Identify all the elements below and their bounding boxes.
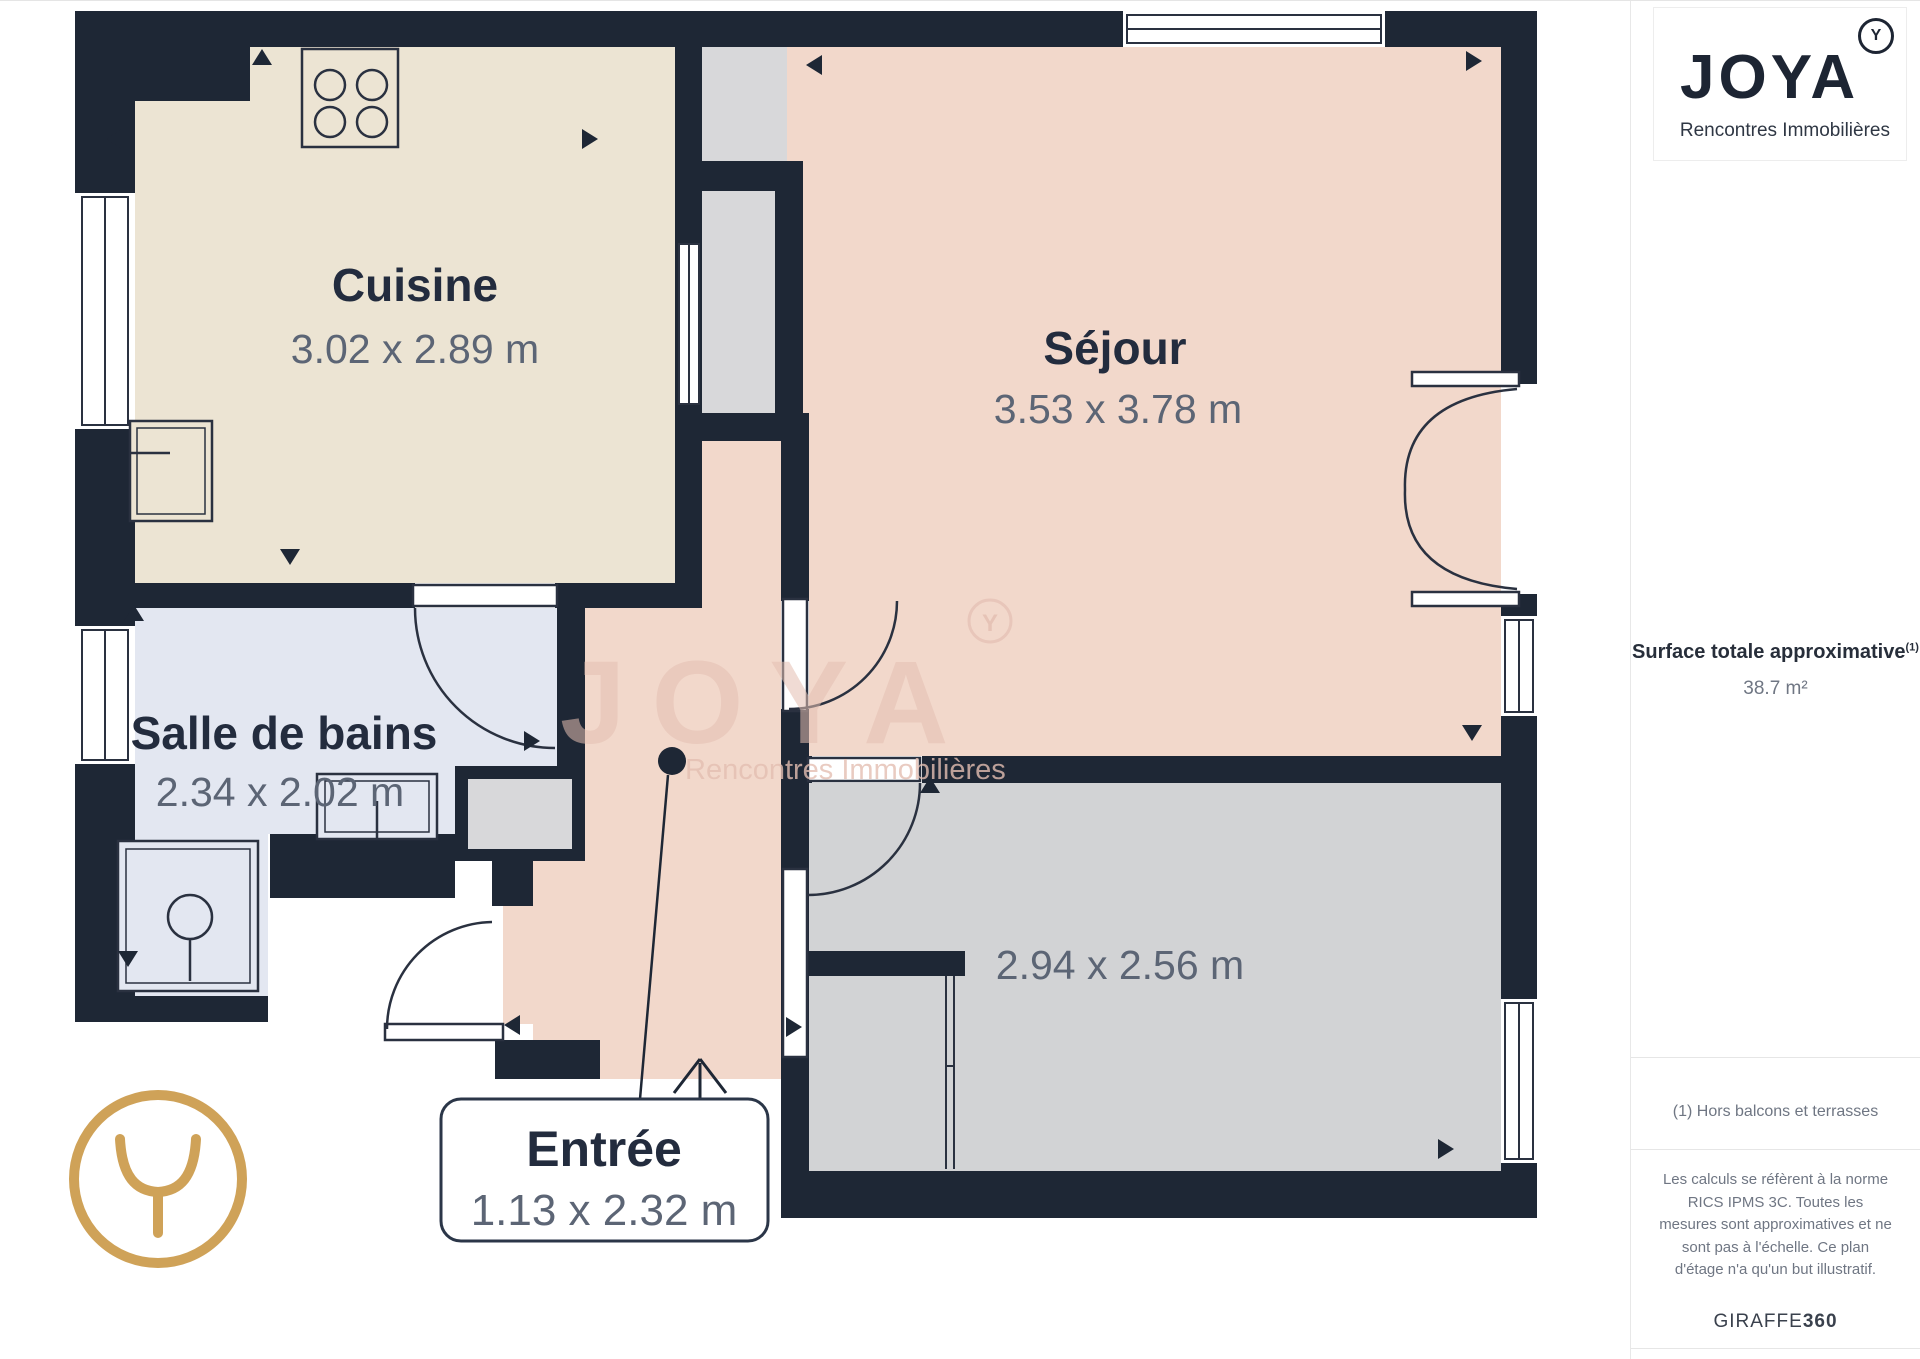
agency-logo-wordmark: JOYA [1680, 42, 1859, 113]
appliance-icon [130, 421, 212, 521]
shaft-lower [702, 191, 775, 413]
chambre-window-icon [1505, 1003, 1533, 1159]
opening-french-door [1501, 384, 1537, 594]
callout-dot [658, 747, 686, 775]
surface-total-value: 38.7 m² [1631, 678, 1920, 700]
shower-icon [118, 841, 258, 991]
surface-total-block: Surface totale approximative(1) 38.7 m² [1631, 641, 1920, 700]
wall-under-sink [270, 834, 455, 898]
wall-entree-right [781, 441, 809, 1218]
wall-header-topleft [135, 47, 250, 101]
legal-disclaimer: Les calculs se réfèrent à la norme RICS … [1631, 1169, 1920, 1282]
wall-chambre-bottom [781, 1171, 1537, 1218]
agency-logo-tagline: Rencontres Immobilières [1680, 120, 1890, 142]
wall-nook-left [75, 834, 110, 1017]
sejour-dimensions: 3.53 x 3.78 m [994, 386, 1242, 432]
wall-closet-stub [809, 951, 965, 976]
giraffe-brand-name: GIRAFFE [1713, 1311, 1802, 1332]
info-sidebar: JOYA Y Rencontres Immobilières Surface t… [1630, 1, 1920, 1359]
bains-window-icon [82, 630, 128, 760]
wall-frontdoor-stub-upper [492, 861, 533, 906]
wall-shaft-bottom [675, 413, 809, 441]
wall-frontdoor-stub-lower [495, 1040, 600, 1079]
entree-dimensions: 1.13 x 2.32 m [471, 1186, 738, 1235]
watermark-monogram: Y [982, 610, 998, 637]
giraffe360-brand: GIRAFFE360 [1631, 1311, 1920, 1333]
chambre-dimensions: 2.94 x 2.56 m [996, 942, 1244, 988]
entree-label: Entrée [526, 1121, 682, 1177]
floorplan-page: JOYA Rencontres Immobilières Y Cuisine 3… [0, 0, 1920, 1359]
giraffe-brand-suffix: 360 [1803, 1311, 1838, 1332]
surface-footnote-marker: (1) [1905, 641, 1918, 653]
cuisine-label: Cuisine [332, 259, 498, 311]
divider [1631, 1149, 1920, 1150]
stove-icon [302, 49, 398, 147]
cuisine-dimensions: 3.02 x 2.89 m [291, 326, 539, 372]
divider [1631, 1057, 1920, 1058]
cuisine-glazing-icon [679, 244, 699, 404]
footnote-text: (1) Hors balcons et terrasses [1631, 1103, 1920, 1121]
sejour-window-icon [1505, 620, 1533, 712]
cuisine-window-icon [82, 197, 128, 425]
sejour-label: Séjour [1043, 322, 1186, 374]
agency-monogram-icon: Y [1858, 18, 1894, 54]
salle-de-bains-dimensions: 2.34 x 2.02 m [156, 769, 404, 815]
surface-total-label: Surface totale approximative(1) [1631, 641, 1920, 664]
front-door-icon [385, 922, 503, 1040]
watermark-tagline: Rencontres Immobilières [685, 754, 1006, 786]
shaft-upper [702, 47, 787, 161]
joya-gold-logo-icon [74, 1095, 242, 1263]
agency-logo-card: JOYA Y Rencontres Immobilières [1653, 7, 1907, 161]
divider [1631, 1348, 1920, 1349]
salle-de-bains-label: Salle de bains [131, 707, 438, 759]
wall-nook-bottom [75, 996, 268, 1022]
duct-inset [468, 779, 572, 849]
sejour-top-window-icon [1127, 15, 1381, 43]
surface-label-text: Surface totale approximative [1632, 641, 1905, 663]
entree-doorway-floor [503, 906, 533, 1024]
wall-shaft-right [775, 161, 803, 441]
watermark-wordmark: JOYA [560, 637, 975, 769]
floorplan-drawing: JOYA Rencontres Immobilières Y Cuisine 3… [0, 1, 1630, 1359]
